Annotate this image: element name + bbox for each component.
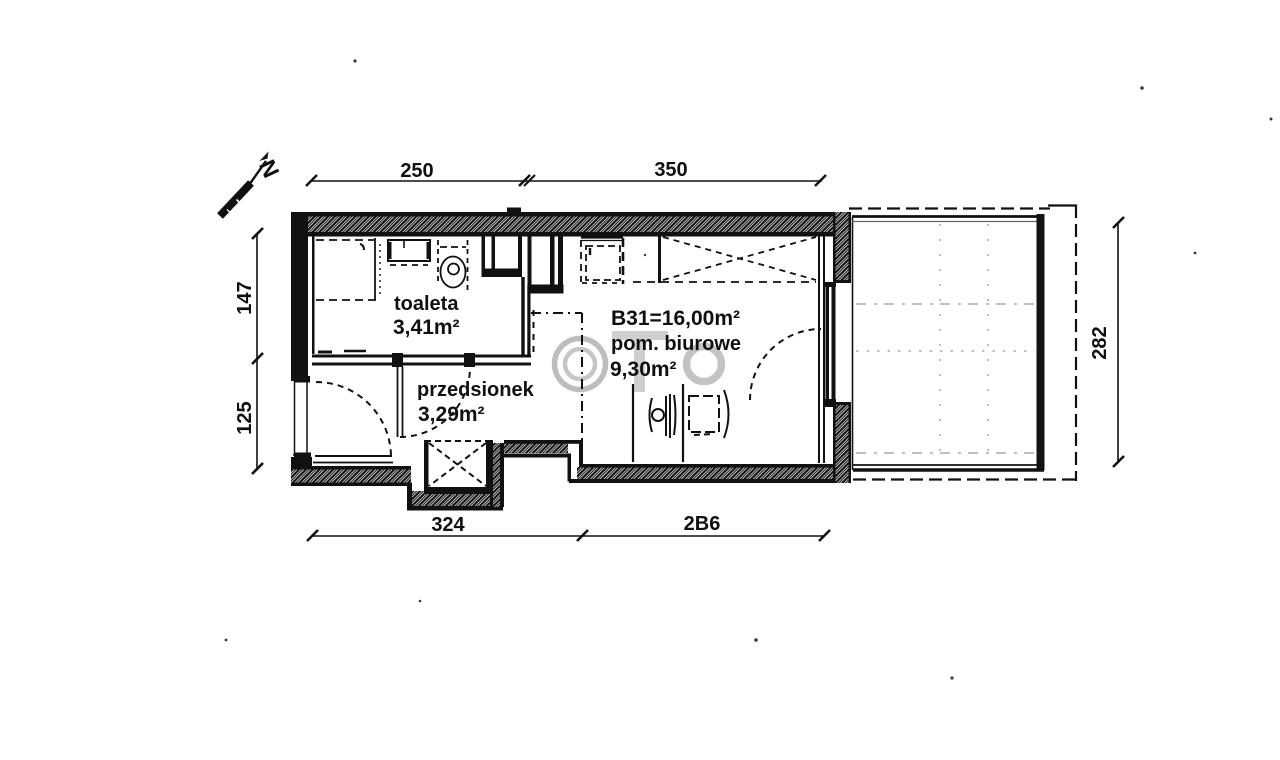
svg-text:9,30m²: 9,30m² (610, 358, 677, 381)
svg-text:3,29m²: 3,29m² (418, 403, 485, 426)
svg-text:toaleta: toaleta (394, 293, 459, 315)
svg-text:250: 250 (400, 160, 433, 182)
svg-text:B31=16,00m²: B31=16,00m² (611, 307, 740, 330)
svg-text:125: 125 (234, 401, 256, 434)
svg-text:przedsionek: przedsionek (417, 379, 535, 401)
svg-text:147: 147 (234, 281, 256, 314)
svg-text:324: 324 (431, 514, 465, 536)
svg-text:350: 350 (654, 159, 687, 181)
svg-text:282: 282 (1089, 326, 1111, 359)
svg-text:2B6: 2B6 (684, 513, 721, 535)
svg-text:pom. biurowe: pom. biurowe (611, 333, 741, 355)
svg-text:3,41m²: 3,41m² (393, 316, 460, 339)
